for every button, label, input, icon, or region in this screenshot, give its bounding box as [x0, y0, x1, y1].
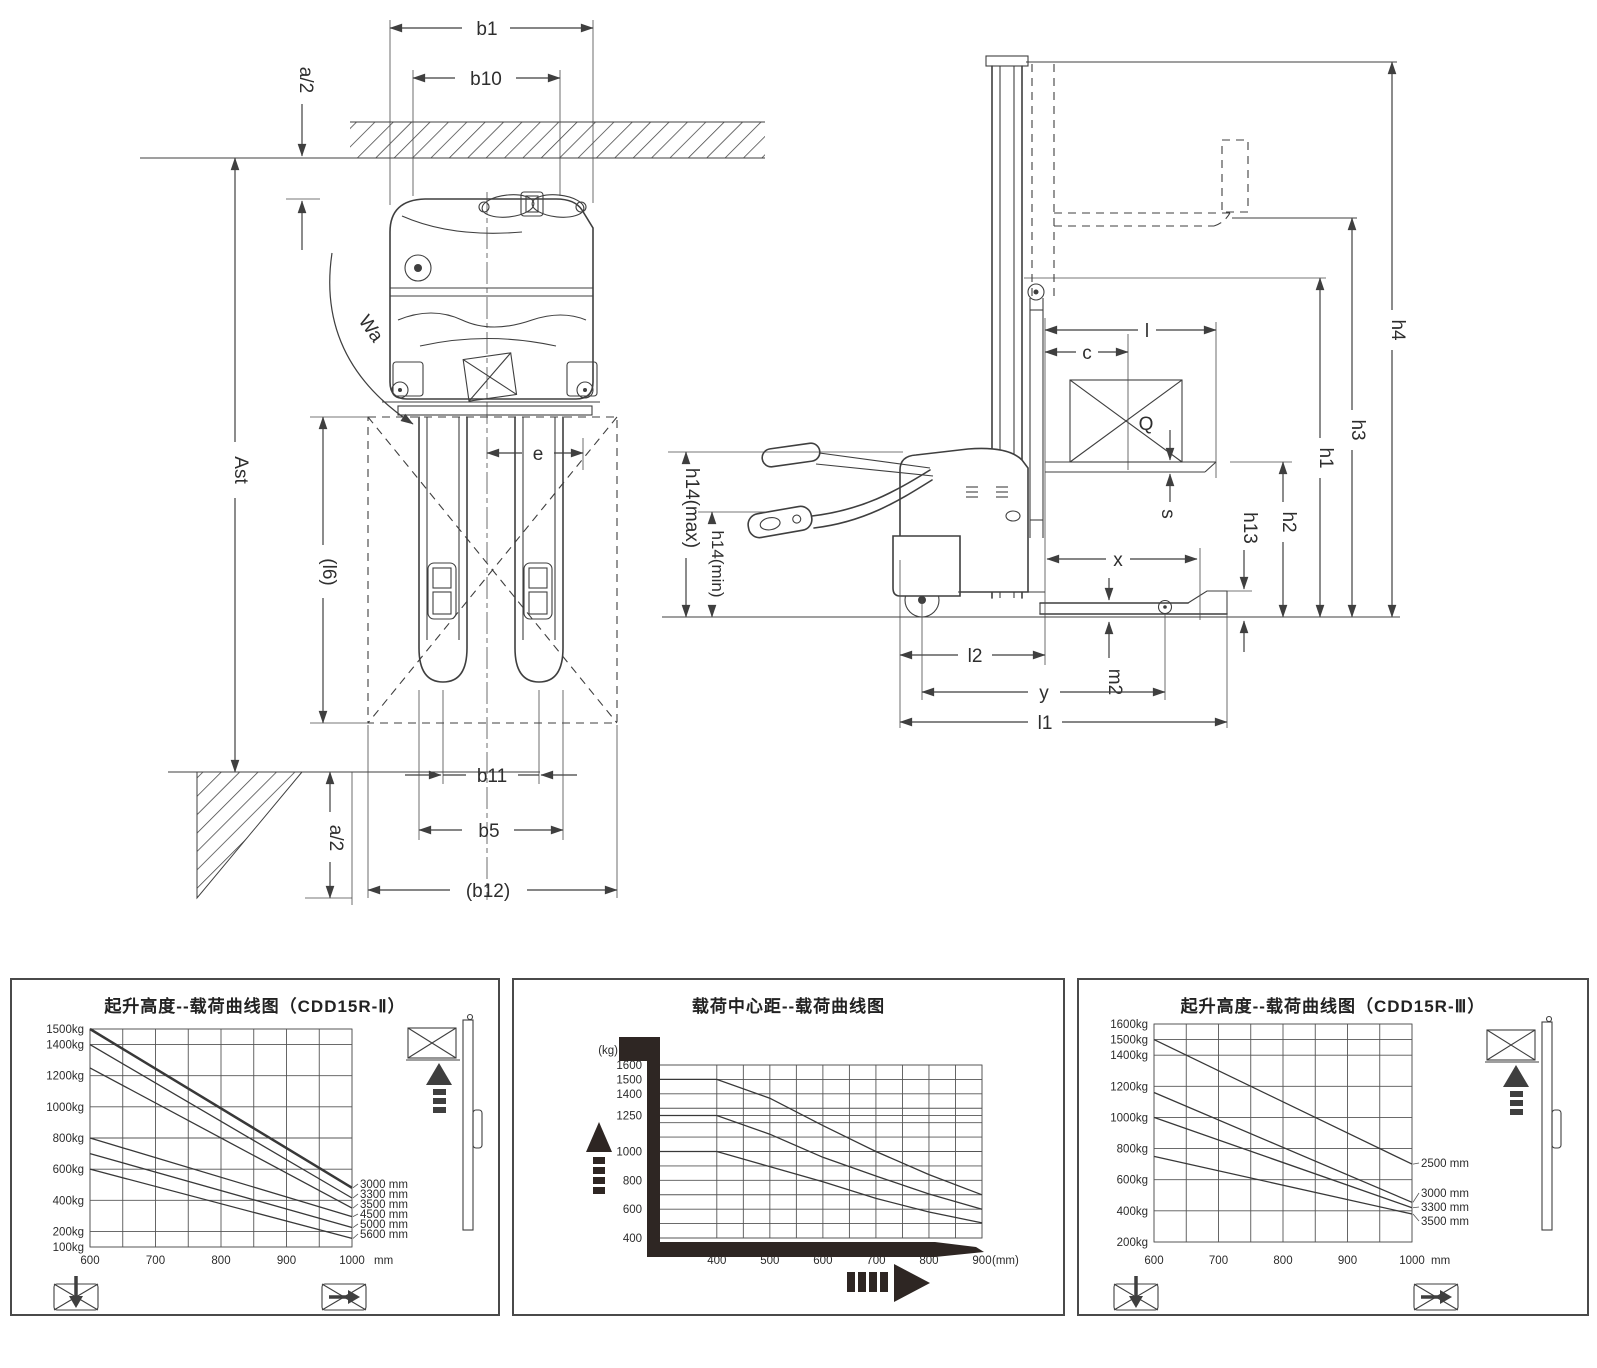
load-center-arrow-icon	[847, 1264, 930, 1302]
truck-top-view	[382, 192, 600, 415]
chart-panel-load-center: 载荷中心距--载荷曲线图 160015001400125010008006004…	[512, 978, 1065, 1316]
dim-label-ast: Ast	[230, 456, 251, 484]
truck-side-view	[746, 442, 1252, 617]
dim-label-l2: l2	[968, 646, 983, 667]
dim-label-h13: h13	[1239, 512, 1260, 544]
dim-label-c: c	[1082, 343, 1092, 364]
dim-label-l: l	[1145, 321, 1149, 342]
dim-label-b11: b11	[477, 766, 507, 787]
chart-panel-cdd15r-3: 起升高度--载荷曲线图（CDD15R-Ⅲ） 2500 mm3000 mm3300…	[1077, 978, 1589, 1316]
dim-label-b5: b5	[478, 821, 499, 842]
dim-label-h14min: h14(min)	[708, 530, 727, 597]
forks-top-view	[368, 192, 617, 900]
chart-panel-cdd15r-2: 起升高度--载荷曲线图（CDD15R-Ⅱ） 3000 mm3300 mm3500…	[10, 978, 500, 1316]
dim-label-b1: b1	[476, 19, 497, 40]
front-view-drawing: Wa b1 b10 a/2 Ast (l6)	[140, 19, 765, 905]
load-lower-icon	[54, 1276, 98, 1310]
dim-label-y: y	[1039, 683, 1049, 704]
load-label-q: Q	[1139, 414, 1154, 435]
load-lower-icon	[1114, 1276, 1158, 1310]
dimension-drawings: Wa b1 b10 a/2 Ast (l6)	[0, 0, 1597, 950]
mast-lift-icon	[1485, 1017, 1561, 1231]
dim-label-b10: b10	[470, 69, 502, 90]
mast-lift-icon	[406, 1015, 482, 1231]
wall-hatch	[350, 122, 765, 158]
load-box: Q	[1045, 334, 1216, 472]
dim-label-h2: h2	[1278, 511, 1299, 532]
spec-sheet-page: Wa b1 b10 a/2 Ast (l6)	[0, 0, 1597, 1368]
dim-label-x: x	[1113, 550, 1123, 571]
chart1-icons	[12, 980, 498, 1314]
tiller-head-top	[479, 192, 586, 220]
thick-axis	[619, 1037, 984, 1257]
load-center-icon	[322, 1284, 366, 1310]
dim-label-wa: Wa	[354, 311, 387, 346]
chart2-decor	[514, 980, 1063, 1314]
dim-label-a2-top: a/2	[295, 67, 316, 93]
dim-label-a2-bottom: a/2	[325, 825, 346, 851]
floor-hatch	[197, 772, 302, 898]
dim-label-h14max: h14(max)	[681, 468, 702, 548]
dim-label-m2: m2	[1104, 669, 1125, 695]
dim-label-l1: l1	[1038, 713, 1053, 734]
dim-label-s: s	[1157, 509, 1178, 519]
dim-label-h3: h3	[1347, 419, 1368, 440]
dim-label-h4: h4	[1387, 319, 1408, 341]
lift-up-icon	[586, 1122, 612, 1194]
dim-label-h1: h1	[1315, 447, 1336, 468]
chart3-icons	[1079, 980, 1587, 1314]
load-center-icon	[1414, 1284, 1458, 1310]
dim-label-e: e	[533, 444, 544, 465]
side-view-drawing: Q h14(max) h14(min) l c	[662, 56, 1408, 734]
mast	[986, 56, 1397, 598]
dim-label-b12: (b12)	[466, 881, 510, 902]
dim-label-l6: (l6)	[318, 558, 339, 585]
